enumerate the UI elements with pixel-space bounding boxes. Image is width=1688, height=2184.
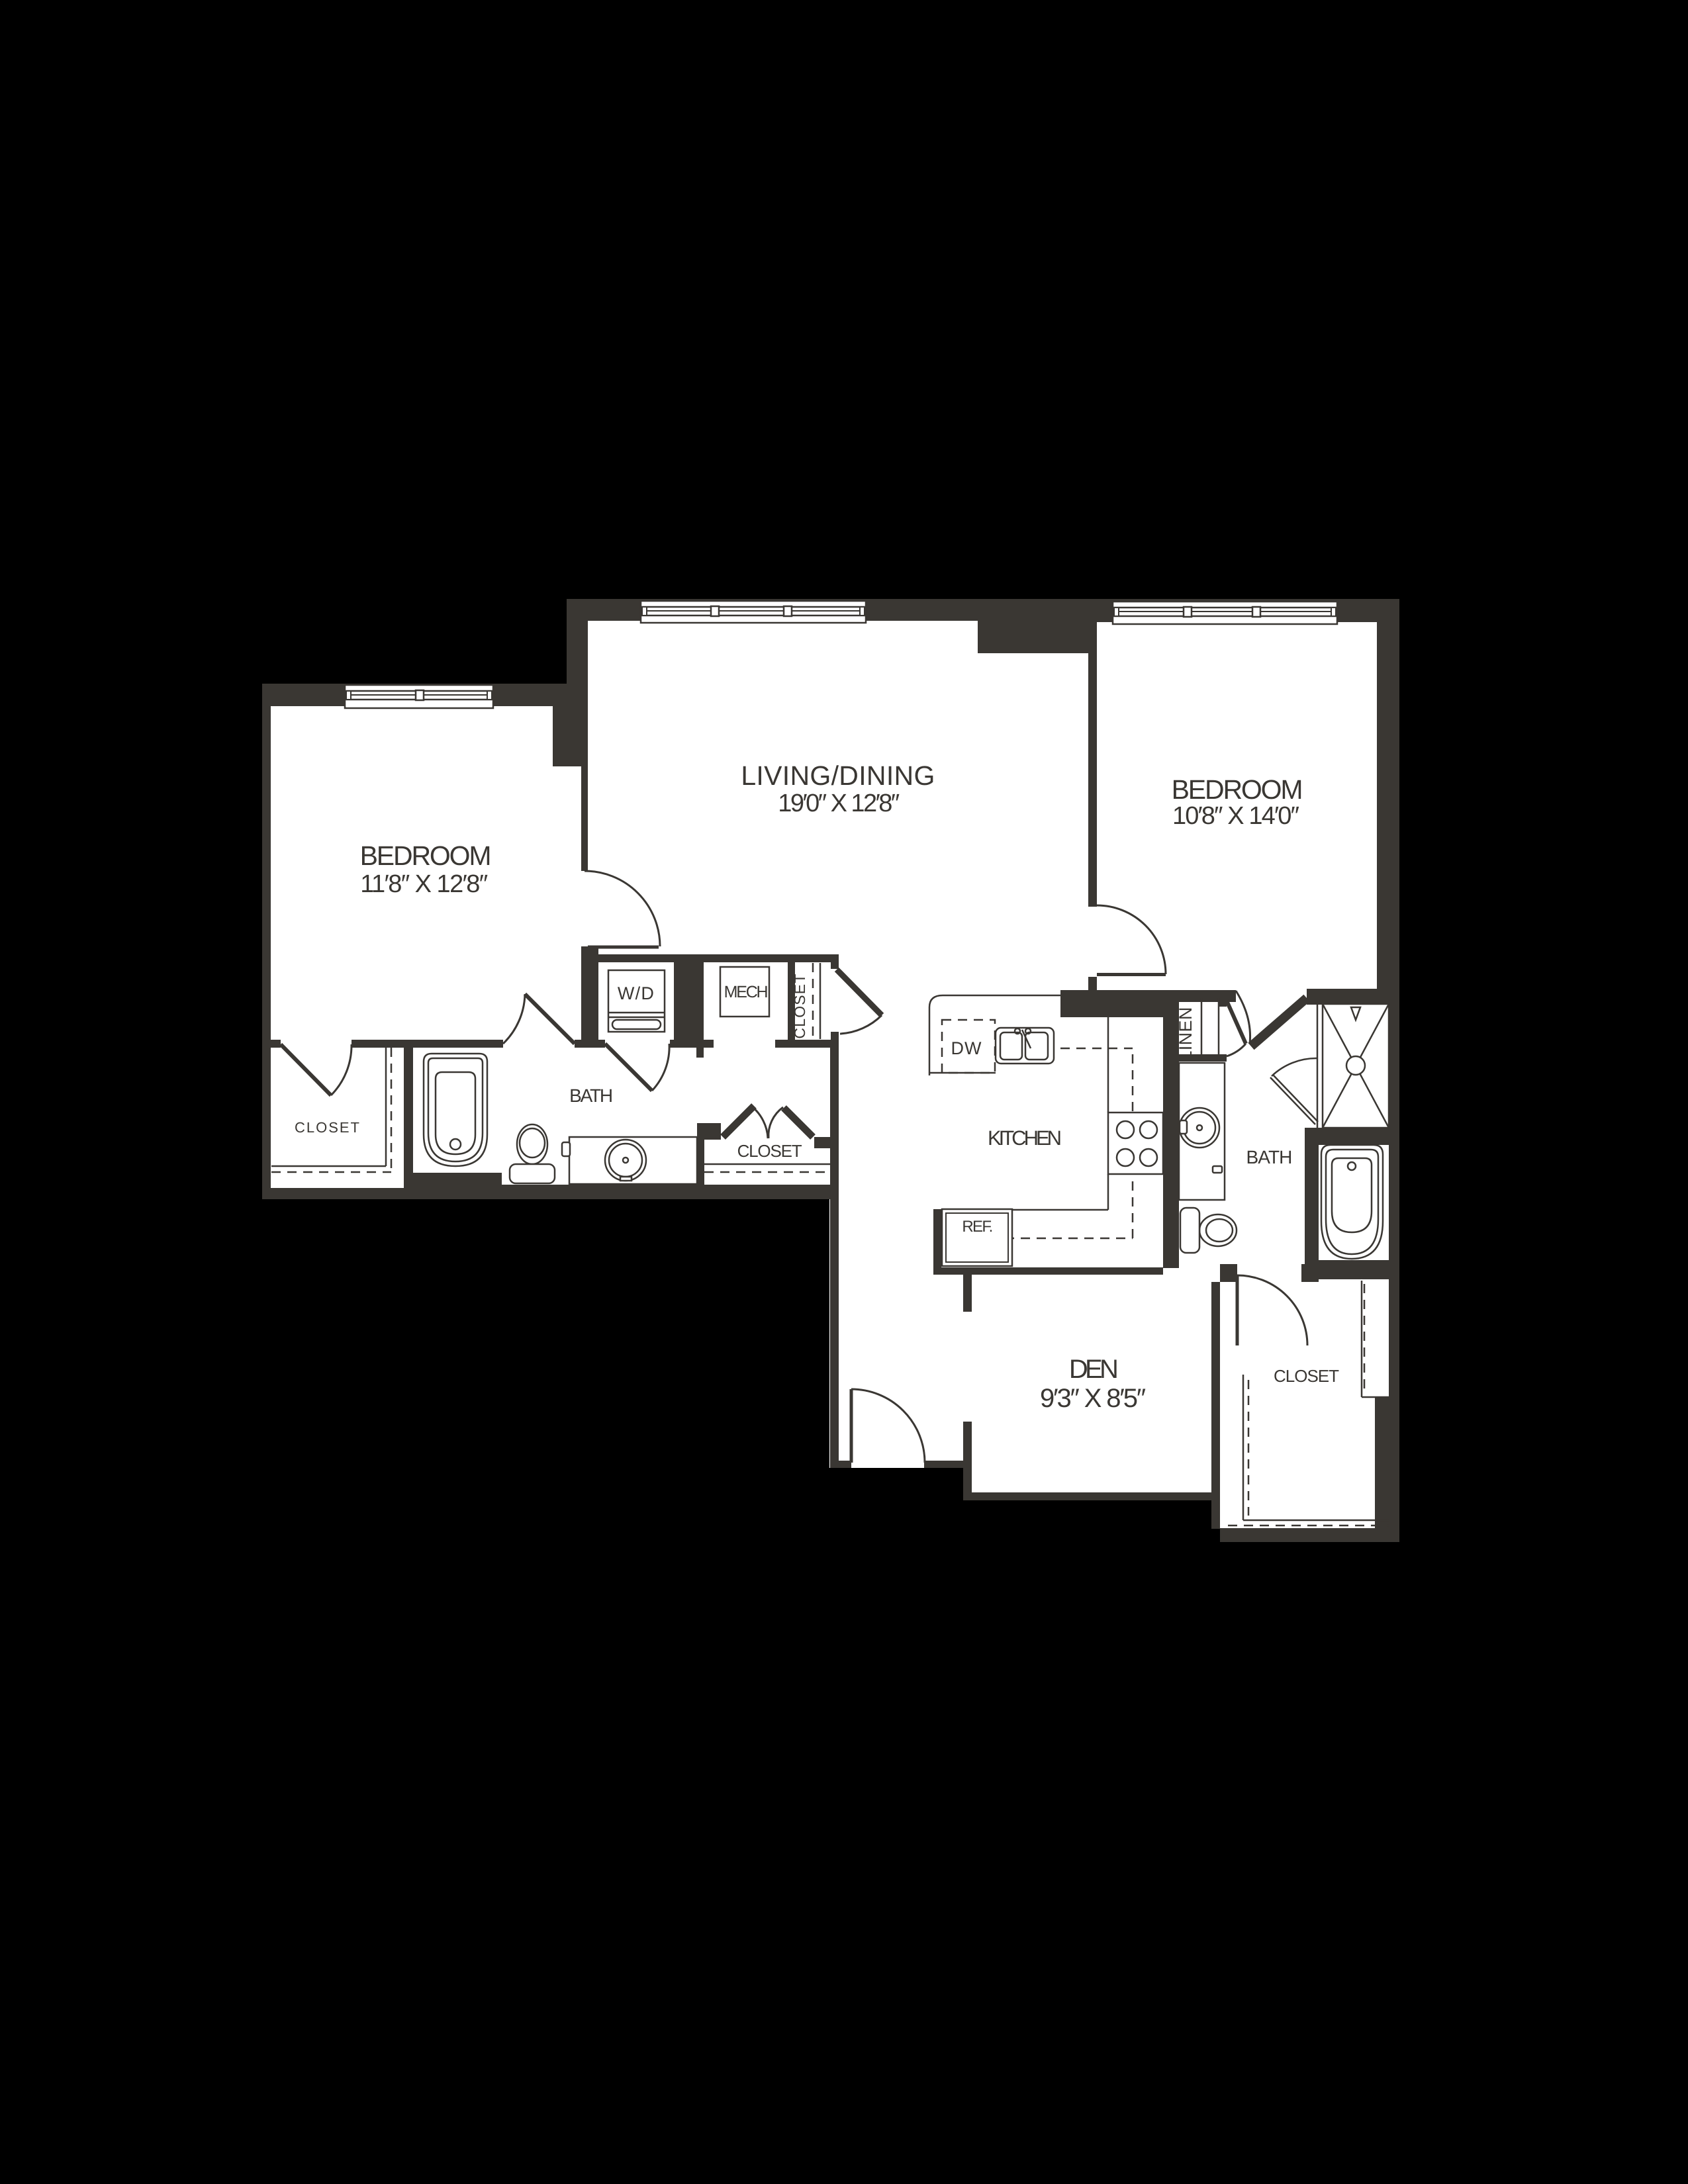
svg-text:DEN: DEN (1069, 1355, 1117, 1384)
svg-text:W/D: W/D (618, 983, 655, 1003)
svg-text:BATH: BATH (569, 1085, 612, 1106)
svg-text:CLOSET: CLOSET (295, 1119, 361, 1136)
svg-text:BEDROOM: BEDROOM (1172, 774, 1302, 805)
svg-text:BATH: BATH (1246, 1147, 1292, 1167)
svg-text:LINEN: LINEN (1176, 1007, 1196, 1060)
svg-text:CLOSET: CLOSET (737, 1141, 802, 1161)
svg-text:10′8″ X 14′0″: 10′8″ X 14′0″ (1172, 802, 1299, 830)
svg-text:11′8″ X 12′8″: 11′8″ X 12′8″ (360, 870, 488, 898)
svg-text:9′3″ X 8′5″: 9′3″ X 8′5″ (1040, 1384, 1146, 1413)
svg-text:LIVING/DINING: LIVING/DINING (741, 760, 935, 791)
svg-text:BEDROOM: BEDROOM (360, 841, 491, 871)
svg-text:CLOSET: CLOSET (791, 973, 808, 1038)
svg-text:REF.: REF. (962, 1218, 992, 1236)
svg-text:CLOSET: CLOSET (1274, 1366, 1339, 1386)
svg-text:DW: DW (951, 1038, 982, 1058)
svg-text:19′0″ X 12′8″: 19′0″ X 12′8″ (778, 790, 899, 817)
svg-text:KITCHEN: KITCHEN (988, 1126, 1060, 1150)
svg-text:MECH: MECH (724, 983, 768, 1001)
